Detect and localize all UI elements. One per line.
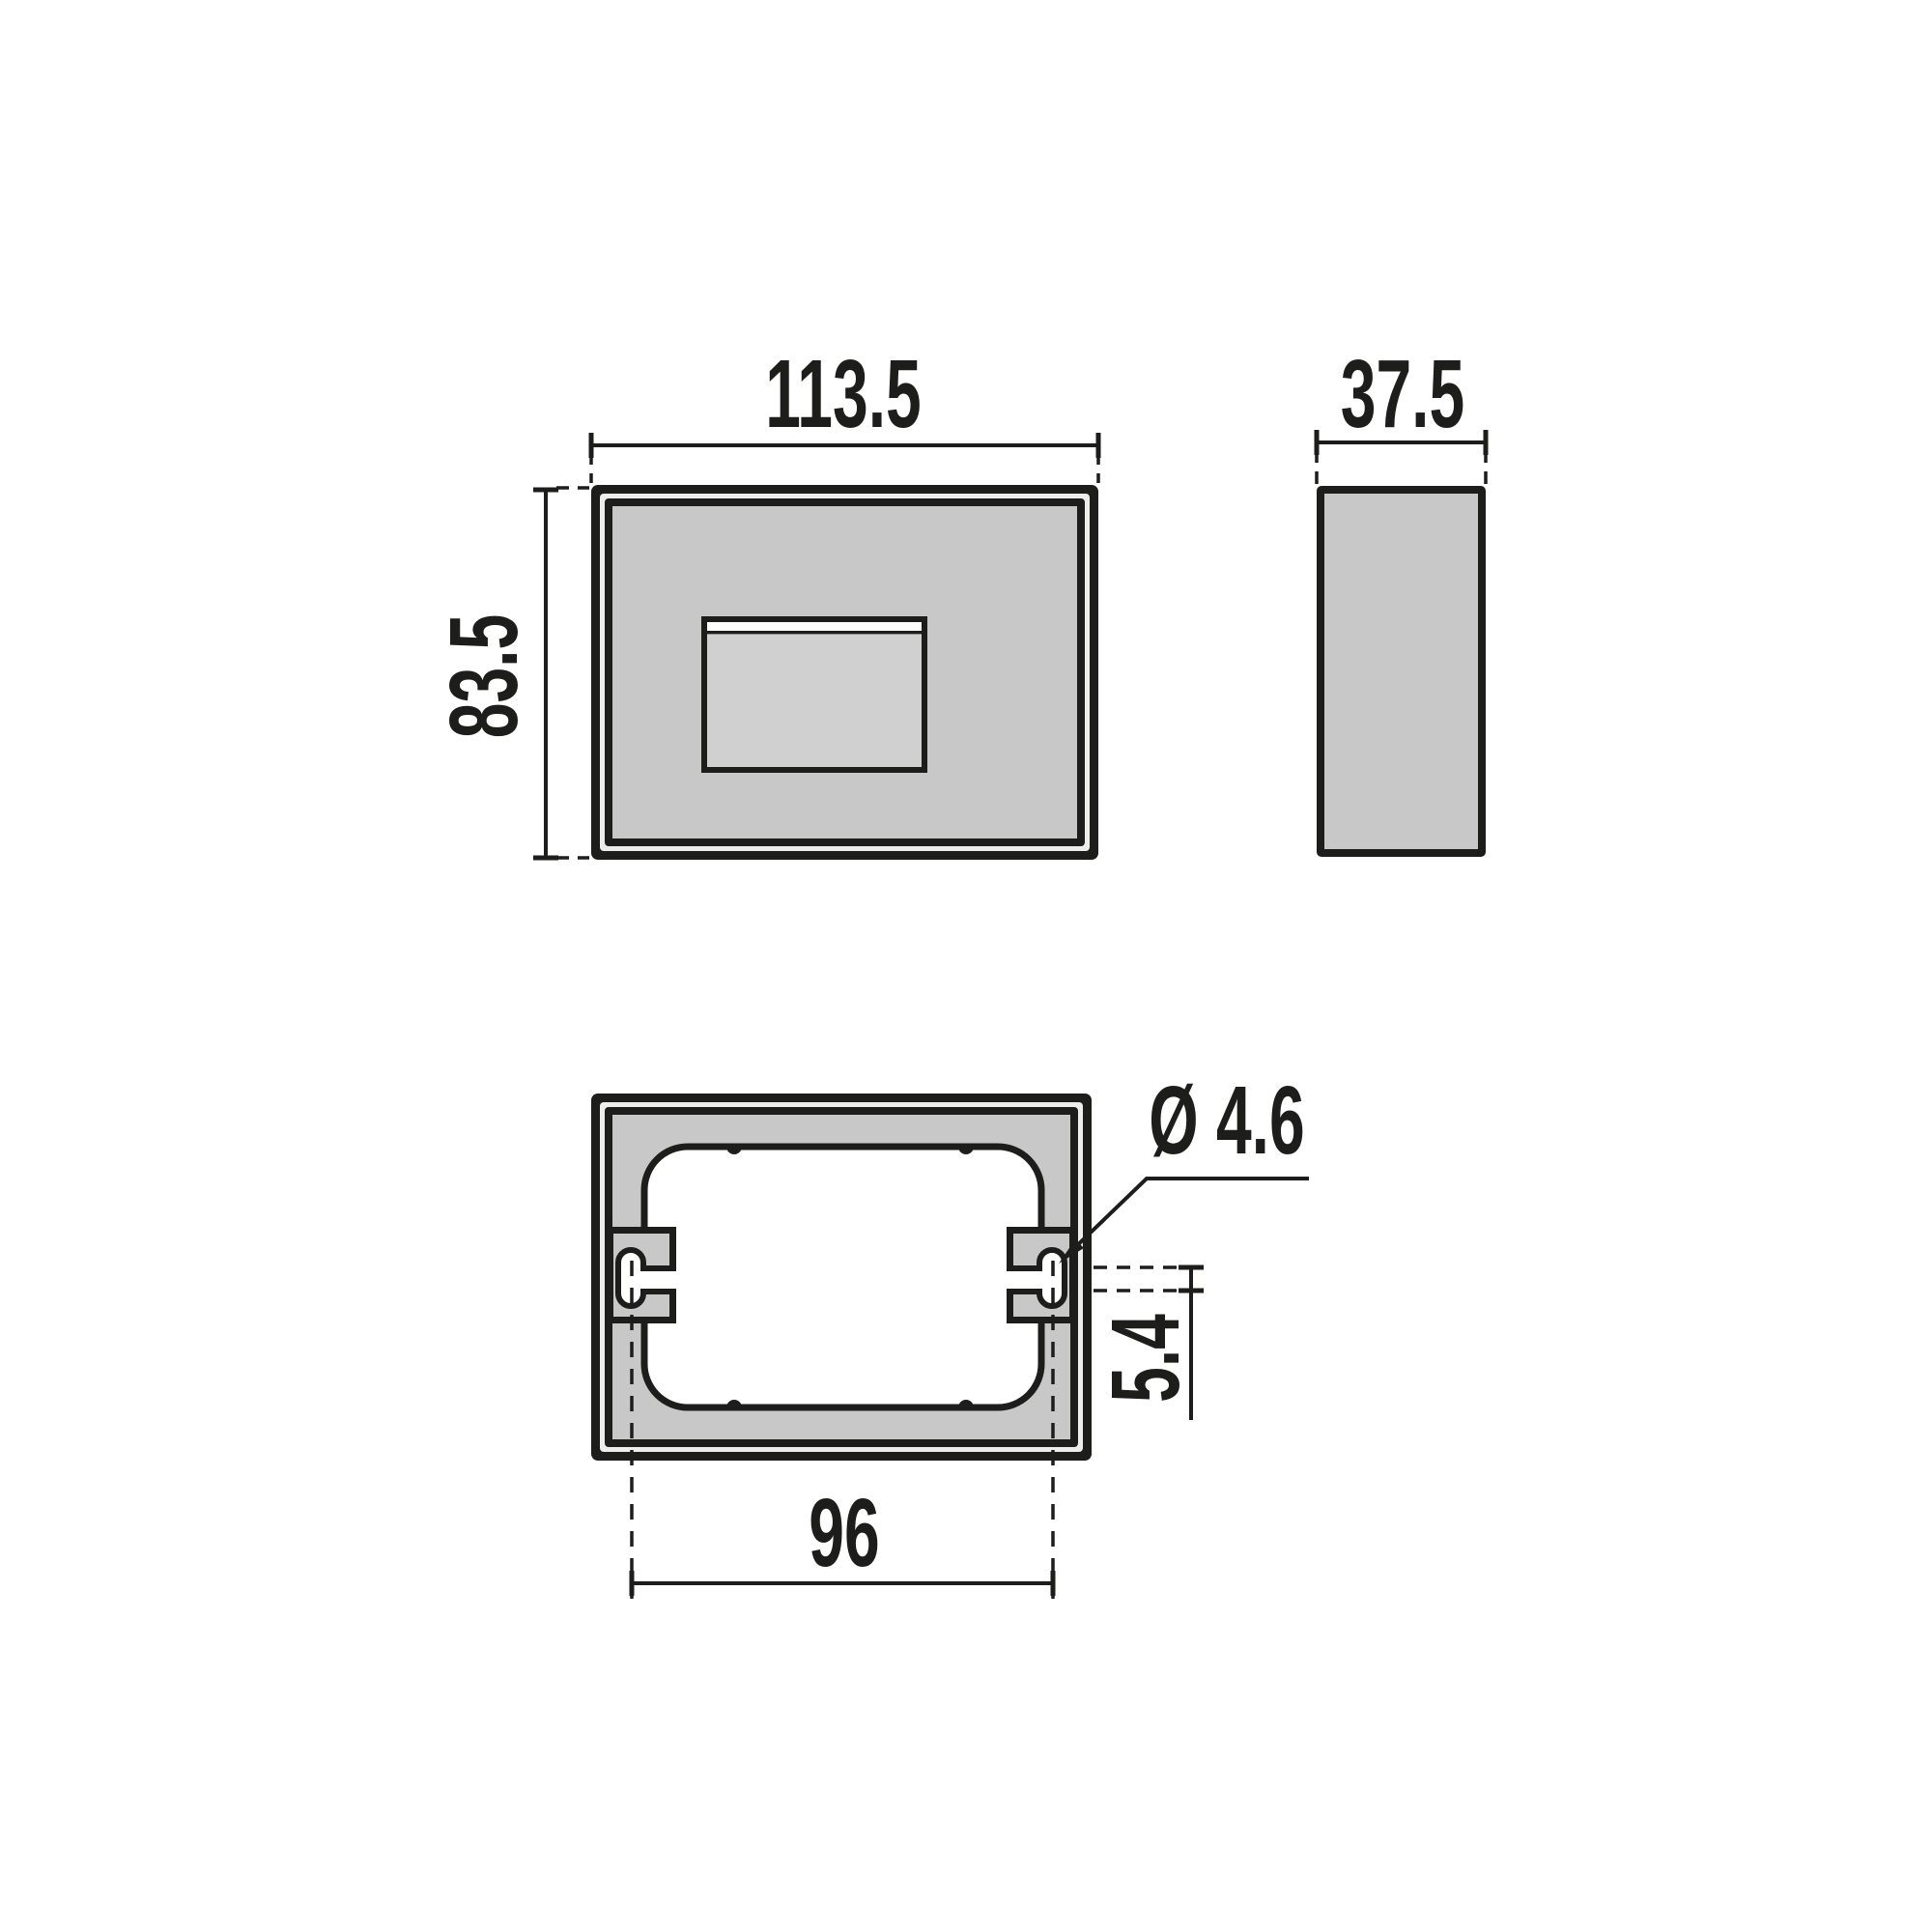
hole-diameter-label: Ø 4.6 <box>1149 1072 1304 1169</box>
left-mounting-tab <box>607 1227 676 1323</box>
side-view <box>1317 486 1486 857</box>
slot-offset-label: 5.4 <box>1097 1314 1194 1403</box>
front-window-glass <box>707 635 922 767</box>
front-view <box>591 485 1098 860</box>
mounting-spacing-label: 96 <box>809 1485 879 1581</box>
hole-diameter-callout <box>1059 1179 1309 1264</box>
leader-line <box>1067 1179 1309 1255</box>
technical-drawing <box>0 0 1932 1932</box>
side-depth-label: 37.5 <box>1341 346 1464 442</box>
drawing-canvas: 113.5 83.5 37.5 Ø 4.6 5.4 96 <box>0 0 1932 1932</box>
front-window-lip-line <box>707 631 922 635</box>
side-face <box>1324 494 1478 849</box>
dimension-front-height <box>533 488 589 858</box>
right-mounting-tab <box>1007 1227 1076 1323</box>
front-height-label: 83.5 <box>436 614 532 738</box>
back-view <box>591 1094 1092 1461</box>
front-width-label: 113.5 <box>765 346 922 442</box>
back-cutout <box>644 1147 1041 1407</box>
